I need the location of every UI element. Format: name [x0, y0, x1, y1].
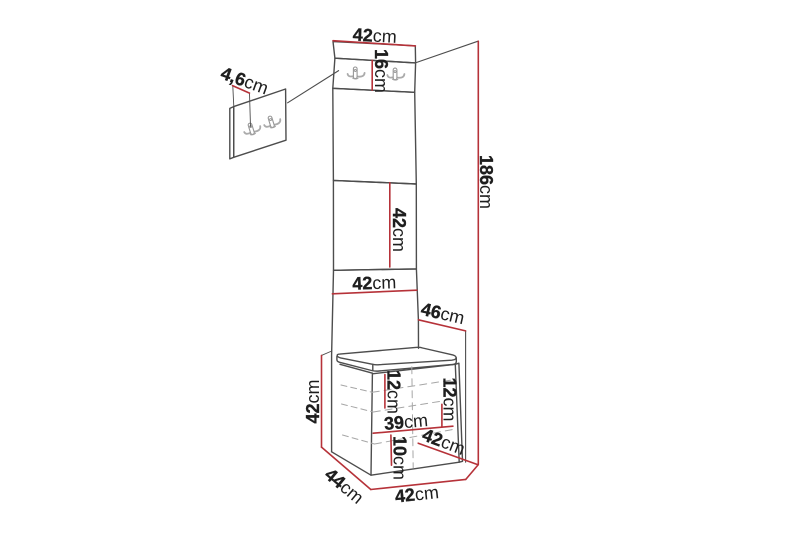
svg-text:42cm: 42cm — [394, 482, 440, 506]
svg-text:10cm: 10cm — [390, 436, 410, 480]
svg-text:42cm: 42cm — [352, 25, 397, 47]
svg-text:42cm: 42cm — [420, 425, 468, 459]
svg-text:39cm: 39cm — [383, 410, 429, 434]
svg-text:44cm: 44cm — [321, 464, 368, 508]
svg-text:12cm: 12cm — [440, 378, 460, 422]
svg-text:16cm: 16cm — [371, 49, 391, 93]
svg-text:42cm: 42cm — [303, 379, 323, 423]
svg-text:42cm: 42cm — [389, 208, 409, 252]
svg-text:12cm: 12cm — [383, 370, 403, 414]
svg-text:186cm: 186cm — [476, 155, 496, 209]
svg-text:4,6cm: 4,6cm — [218, 63, 271, 99]
svg-text:42cm: 42cm — [352, 272, 397, 294]
svg-text:46cm: 46cm — [419, 299, 466, 328]
